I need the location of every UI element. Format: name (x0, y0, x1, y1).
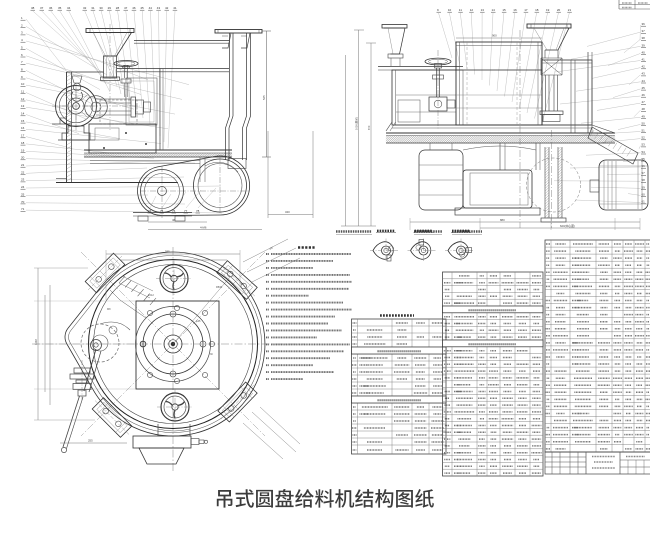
svg-text:22: 22 (21, 170, 25, 174)
svg-text:74: 74 (148, 209, 152, 213)
svg-text:21: 21 (568, 8, 572, 12)
svg-text:19: 19 (546, 8, 550, 12)
svg-text:34: 34 (67, 6, 71, 10)
svg-text:1050(悬吊): 1050(悬吊) (355, 117, 359, 130)
svg-text:52: 52 (642, 136, 646, 140)
svg-text:12: 12 (21, 97, 25, 101)
svg-text:14: 14 (21, 112, 25, 116)
svg-text:900: 900 (492, 34, 497, 38)
svg-text:29: 29 (108, 6, 112, 10)
svg-text:37: 37 (642, 29, 646, 33)
svg-text:585: 585 (165, 250, 170, 254)
svg-text:25: 25 (21, 192, 25, 196)
svg-text:43: 43 (157, 6, 161, 10)
svg-text:12: 12 (470, 8, 474, 12)
svg-text:16: 16 (21, 126, 25, 130)
svg-text:38: 38 (642, 36, 646, 40)
svg-text:525: 525 (262, 95, 266, 100)
svg-text:21: 21 (21, 163, 25, 167)
svg-text:23: 23 (21, 178, 25, 182)
svg-text:47: 47 (642, 100, 646, 104)
svg-text:51: 51 (642, 129, 646, 133)
svg-text:42: 42 (642, 65, 646, 69)
svg-text:870: 870 (367, 125, 371, 130)
svg-text:30: 30 (99, 6, 103, 10)
svg-text:36: 36 (642, 22, 646, 26)
svg-text:44: 44 (149, 6, 153, 10)
svg-text:28: 28 (116, 6, 120, 10)
svg-text:50: 50 (642, 121, 646, 125)
svg-text:41: 41 (173, 6, 177, 10)
svg-text:31: 31 (91, 6, 95, 10)
svg-text:17: 17 (21, 134, 25, 138)
svg-text:13: 13 (21, 104, 25, 108)
svg-text:19: 19 (21, 148, 25, 152)
svg-text:46: 46 (172, 218, 176, 222)
svg-text:20: 20 (557, 8, 561, 12)
svg-text:53: 53 (642, 143, 646, 147)
svg-text:15: 15 (502, 8, 506, 12)
svg-text:45: 45 (642, 86, 646, 90)
svg-text:41: 41 (642, 58, 646, 62)
svg-text:18: 18 (21, 141, 25, 145)
svg-text:44: 44 (642, 79, 646, 83)
svg-text:M8: M8 (107, 308, 111, 311)
svg-text:255: 255 (88, 439, 93, 443)
svg-text:75: 75 (160, 209, 164, 213)
svg-text:620(中心距): 620(中心距) (560, 224, 575, 228)
svg-text:48: 48 (642, 107, 646, 111)
svg-text:24: 24 (21, 185, 25, 189)
svg-text:11: 11 (459, 8, 462, 12)
svg-text:880: 880 (500, 218, 505, 222)
svg-text:39: 39 (642, 43, 646, 47)
svg-text:340: 340 (285, 210, 290, 214)
svg-text:18: 18 (535, 8, 539, 12)
svg-text:16: 16 (513, 8, 517, 12)
svg-text:17: 17 (524, 8, 528, 12)
svg-text:76: 76 (172, 209, 176, 213)
svg-text:78: 78 (196, 209, 200, 213)
svg-text:14: 14 (492, 8, 496, 12)
svg-text:42: 42 (165, 6, 169, 10)
svg-text:15: 15 (21, 119, 25, 123)
svg-text:φ45: φ45 (196, 320, 201, 323)
svg-text:46: 46 (642, 93, 646, 97)
svg-text:54: 54 (642, 150, 646, 154)
svg-text:R830: R830 (216, 285, 223, 289)
svg-text:77: 77 (184, 209, 188, 213)
svg-text:10: 10 (448, 8, 452, 12)
svg-text:13: 13 (481, 8, 485, 12)
svg-text:10: 10 (21, 82, 25, 86)
svg-text:47: 47 (124, 6, 128, 10)
svg-text:4-M6: 4-M6 (200, 226, 207, 230)
svg-text:43: 43 (642, 72, 646, 76)
svg-text:45: 45 (140, 6, 144, 10)
svg-text:35: 35 (58, 6, 62, 10)
svg-text:32: 32 (83, 6, 87, 10)
svg-text:38: 38 (31, 6, 35, 10)
svg-text:49: 49 (642, 114, 646, 118)
svg-text:36: 36 (49, 6, 53, 10)
svg-text:71: 71 (21, 207, 25, 211)
svg-text:70: 70 (21, 200, 25, 204)
svg-text:40: 40 (642, 50, 646, 54)
svg-text:1212: 1212 (148, 293, 154, 297)
svg-text:11: 11 (21, 90, 24, 94)
svg-text:1248: 1248 (34, 339, 38, 345)
svg-text:46: 46 (132, 6, 136, 10)
svg-text:20: 20 (21, 156, 25, 160)
svg-text:37: 37 (40, 6, 44, 10)
